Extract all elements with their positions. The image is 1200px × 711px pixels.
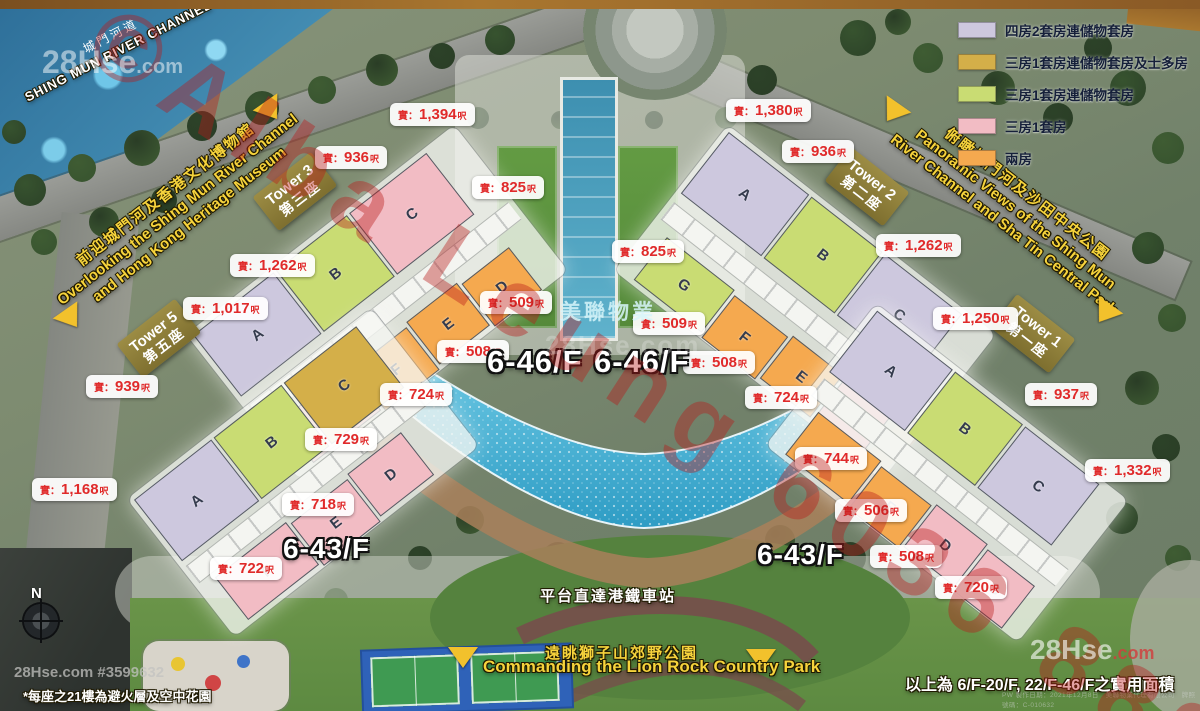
area-prefix: 實： xyxy=(445,344,465,359)
area-unit: 呎 xyxy=(850,453,859,466)
area-pill: 實：506呎 xyxy=(835,499,907,522)
area-pill: 實：1,168呎 xyxy=(32,478,117,501)
area-pill: 實：509呎 xyxy=(633,312,705,335)
unit-letter: A xyxy=(187,490,206,510)
tree-icon xyxy=(1158,304,1186,332)
area-pill: 實：936呎 xyxy=(315,146,387,169)
area-prefix: 實： xyxy=(40,482,60,497)
tree-icon xyxy=(68,154,96,182)
area-pill: 實：724呎 xyxy=(745,386,817,409)
area-value: 825 xyxy=(641,243,666,260)
compass-icon xyxy=(24,604,58,638)
area-pill: 實：825呎 xyxy=(612,240,684,263)
area-value: 729 xyxy=(334,431,359,448)
area-unit: 呎 xyxy=(527,182,536,195)
area-pill: 實：508呎 xyxy=(683,351,755,374)
area-prefix: 實： xyxy=(1033,387,1053,402)
area-value: 720 xyxy=(964,579,989,596)
area-value: 722 xyxy=(239,560,264,577)
area-unit: 呎 xyxy=(370,152,379,165)
tree-icon xyxy=(1132,232,1164,264)
tree-icon xyxy=(747,65,777,95)
area-pill: 實：508呎 xyxy=(870,545,942,568)
water-feature-axis xyxy=(563,80,615,338)
area-value: 936 xyxy=(811,143,836,160)
area-unit: 呎 xyxy=(251,303,260,316)
area-value: 1,262 xyxy=(905,237,943,254)
area-prefix: 實： xyxy=(691,355,711,370)
unit-letter: A xyxy=(736,184,755,204)
area-prefix: 實： xyxy=(488,295,508,310)
area-value: 508 xyxy=(899,548,924,565)
area-unit: 呎 xyxy=(337,499,346,512)
area-pill: 實：937呎 xyxy=(1025,383,1097,406)
area-pill: 實：825呎 xyxy=(472,176,544,199)
unit-type-legend: 四房2套房連儲物套房三房1套房連儲物套房及士多房三房1套房連儲物套房三房1套房兩… xyxy=(958,20,1188,180)
area-unit: 呎 xyxy=(360,434,369,447)
legend-label: 三房1套房連儲物套房 xyxy=(1005,84,1134,104)
tree-icon xyxy=(456,506,484,534)
legend-row: 三房1套房連儲物套房及士多房 xyxy=(958,52,1188,72)
area-value: 724 xyxy=(409,386,434,403)
unit-letter: B xyxy=(814,245,833,265)
floor-range-label: 6-46/F xyxy=(594,344,690,380)
area-prefix: 實： xyxy=(734,103,754,118)
park-banner-en: Commanding the Lion Rock Country Park xyxy=(483,657,820,677)
legend-label: 四房2套房連儲物套房 xyxy=(1005,20,1134,40)
legend-swatch xyxy=(958,118,996,134)
tree-icon xyxy=(485,25,515,55)
tree-icon xyxy=(31,229,57,255)
tree-icon xyxy=(913,43,943,73)
legend-swatch xyxy=(958,86,996,102)
area-unit: 呎 xyxy=(298,260,307,273)
area-pill: 實：1,017呎 xyxy=(183,297,268,320)
area-value: 509 xyxy=(662,315,687,332)
area-prefix: 實： xyxy=(878,549,898,564)
legend-label: 兩房 xyxy=(1005,148,1032,168)
legend-swatch xyxy=(958,54,996,70)
area-value: 1,332 xyxy=(1114,462,1152,479)
area-unit: 呎 xyxy=(458,109,467,122)
area-prefix: 實： xyxy=(191,301,211,316)
area-value: 1,017 xyxy=(212,300,250,317)
area-unit: 呎 xyxy=(800,392,809,405)
unit-letter: C xyxy=(334,375,353,395)
area-prefix: 實： xyxy=(620,244,640,259)
area-unit: 呎 xyxy=(1001,313,1010,326)
area-footnote: 以上為 6/F-20/F, 22/F-46/F之實用面積 xyxy=(905,671,1174,695)
legend-swatch xyxy=(958,150,996,166)
area-value: 744 xyxy=(824,450,849,467)
area-unit: 呎 xyxy=(837,146,846,159)
area-value: 1,394 xyxy=(419,106,457,123)
area-value: 718 xyxy=(311,496,336,513)
area-pill: 實：939呎 xyxy=(86,375,158,398)
area-unit: 呎 xyxy=(265,563,274,576)
area-prefix: 實： xyxy=(238,258,258,273)
area-value: 1,250 xyxy=(962,310,1000,327)
area-prefix: 實： xyxy=(790,144,810,159)
unit-letter: C xyxy=(1029,476,1048,496)
area-value: 1,262 xyxy=(259,257,297,274)
area-pill: 實：729呎 xyxy=(305,428,377,451)
area-unit: 呎 xyxy=(1153,465,1162,478)
floor-range-label: 6-43/F xyxy=(283,533,370,565)
top-border-strip xyxy=(0,0,1200,9)
refuge-floor-footnote: *每座之21樓為避火層及空中花園 xyxy=(23,686,212,705)
unit-letter: E xyxy=(792,367,810,387)
area-prefix: 實： xyxy=(641,316,661,331)
area-unit: 呎 xyxy=(925,551,934,564)
area-unit: 呎 xyxy=(667,246,676,259)
tree-icon xyxy=(308,76,336,104)
area-unit: 呎 xyxy=(890,505,899,518)
area-prefix: 實： xyxy=(94,379,114,394)
area-pill: 實：724呎 xyxy=(380,383,452,406)
floor-range-label: 6-46/F xyxy=(487,344,583,380)
area-pill: 實：1,380呎 xyxy=(726,99,811,122)
area-prefix: 實： xyxy=(398,107,418,122)
area-prefix: 實： xyxy=(218,561,238,576)
area-pill: 實：1,332呎 xyxy=(1085,459,1170,482)
legend-label: 三房1套房 xyxy=(1005,116,1067,136)
area-unit: 呎 xyxy=(990,582,999,595)
unit-letter: B xyxy=(326,263,345,283)
area-value: 825 xyxy=(501,179,526,196)
area-value: 936 xyxy=(344,149,369,166)
legend-row: 三房1套房 xyxy=(958,116,1188,136)
tower-plate-tower-1: Tower 1第一座 xyxy=(990,294,1075,373)
tree-icon xyxy=(366,54,398,86)
area-unit: 呎 xyxy=(794,105,803,118)
area-prefix: 實： xyxy=(1093,463,1113,478)
area-unit: 呎 xyxy=(100,484,109,497)
unit-letter: C xyxy=(402,204,421,224)
area-prefix: 實： xyxy=(290,497,310,512)
legend-row: 四房2套房連儲物套房 xyxy=(958,20,1188,40)
area-pill: 實：1,250呎 xyxy=(933,307,1018,330)
playground-toy xyxy=(171,657,185,671)
unit-letter: B xyxy=(262,432,281,452)
tree-icon xyxy=(429,43,455,69)
area-unit: 呎 xyxy=(944,240,953,253)
unit-letter: G xyxy=(674,275,694,296)
legend-row: 三房1套房連儲物套房 xyxy=(958,84,1188,104)
area-pill: 實：744呎 xyxy=(795,447,867,470)
area-prefix: 實： xyxy=(941,311,961,326)
area-prefix: 實： xyxy=(313,432,333,447)
unit-letter: B xyxy=(956,419,975,439)
tree-icon xyxy=(124,130,160,166)
area-value: 508 xyxy=(712,354,737,371)
area-prefix: 實： xyxy=(753,390,773,405)
station-access-note: 平台直達港鐵車站 xyxy=(540,585,676,606)
area-value: 1,168 xyxy=(61,481,99,498)
area-value: 1,380 xyxy=(755,102,793,119)
unit-letter: E xyxy=(439,314,457,334)
area-unit: 呎 xyxy=(141,381,150,394)
area-pill: 實：509呎 xyxy=(480,291,552,314)
area-unit: 呎 xyxy=(1080,389,1089,402)
area-pill: 實：1,394呎 xyxy=(390,103,475,126)
area-prefix: 實： xyxy=(843,503,863,518)
area-value: 509 xyxy=(509,294,534,311)
legend-label: 三房1套房連儲物套房及士多房 xyxy=(1005,52,1188,72)
unit-letter: A xyxy=(248,324,267,344)
unit-letter: F xyxy=(736,328,754,347)
area-unit: 呎 xyxy=(688,318,697,331)
site-plan-canvas: ABCGFEDABCFEDABCGFEDABCFEDG Tower 3第三座To… xyxy=(0,0,1200,711)
area-prefix: 實： xyxy=(943,580,963,595)
legend-swatch xyxy=(958,22,996,38)
legend-row: 兩房 xyxy=(958,148,1188,168)
area-prefix: 實： xyxy=(388,387,408,402)
tree-icon xyxy=(885,9,911,35)
area-unit: 呎 xyxy=(738,357,747,370)
area-pill: 實：720呎 xyxy=(935,576,1007,599)
area-prefix: 實： xyxy=(480,180,500,195)
area-pill: 實：936呎 xyxy=(782,140,854,163)
area-value: 937 xyxy=(1054,386,1079,403)
area-prefix: 實： xyxy=(323,150,343,165)
area-value: 939 xyxy=(115,378,140,395)
tree-icon xyxy=(1125,371,1159,405)
area-unit: 呎 xyxy=(435,389,444,402)
unit-letter: D xyxy=(381,464,400,484)
area-unit: 呎 xyxy=(535,297,544,310)
playground-toy xyxy=(237,655,250,668)
tree-icon xyxy=(2,120,26,144)
tree-icon xyxy=(14,174,46,206)
unit-letter: A xyxy=(881,361,900,381)
tree-icon xyxy=(1152,434,1180,462)
area-pill: 實：1,262呎 xyxy=(876,234,961,257)
floor-range-label: 6-43/F xyxy=(757,539,844,571)
area-pill: 實：722呎 xyxy=(210,557,282,580)
tree-icon xyxy=(187,111,217,141)
tennis-court xyxy=(370,654,460,707)
area-value: 506 xyxy=(864,502,889,519)
area-prefix: 實： xyxy=(884,238,904,253)
area-value: 724 xyxy=(774,389,799,406)
arrow-triangle-icon xyxy=(448,647,478,668)
area-prefix: 實： xyxy=(803,451,823,466)
area-pill: 實：718呎 xyxy=(282,493,354,516)
tree-icon xyxy=(840,20,876,56)
area-pill: 實：1,262呎 xyxy=(230,254,315,277)
